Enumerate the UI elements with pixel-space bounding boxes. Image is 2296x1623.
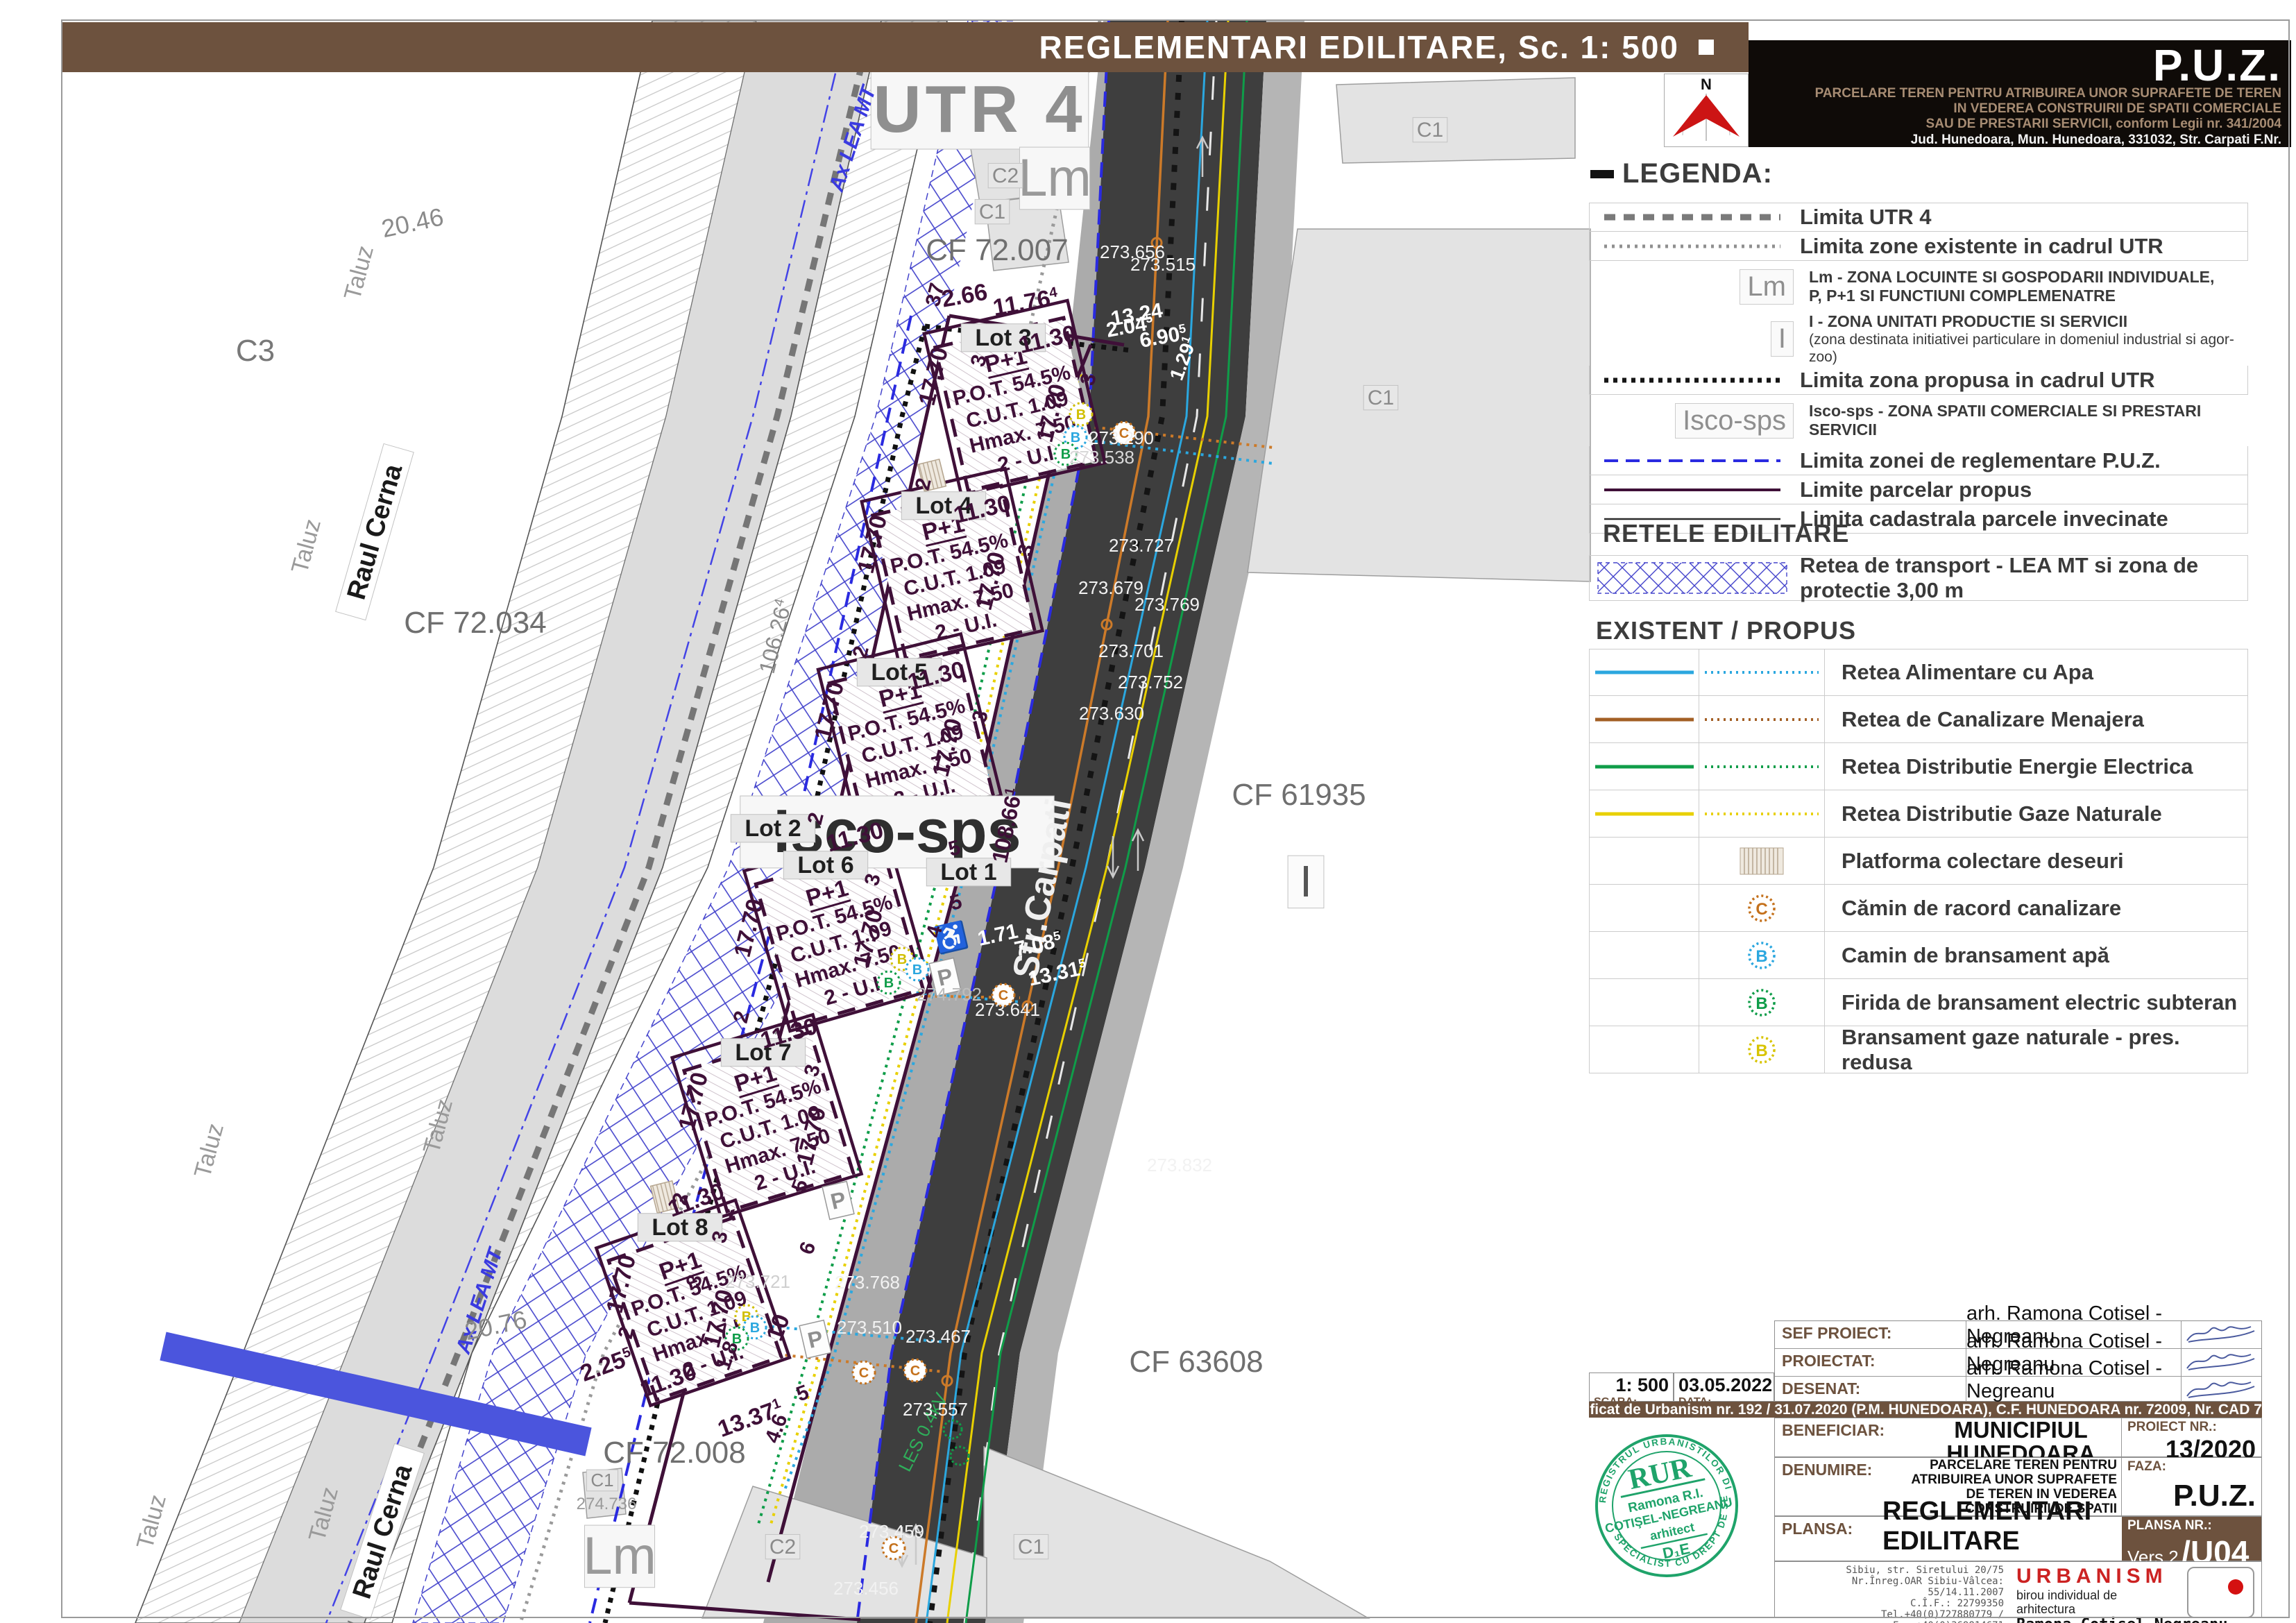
- map-label: C2: [988, 163, 1023, 187]
- svg-text:B: B: [1755, 947, 1767, 966]
- svg-text:B: B: [750, 1320, 760, 1336]
- legend-item: Limita zone existente in cadrul UTR: [1589, 232, 2248, 261]
- retele-heading: RETELE EDILITARE: [1603, 519, 1849, 548]
- svg-text:B: B: [912, 962, 922, 978]
- existent-propus-label: Cămin de racord canalizare: [1825, 896, 2121, 921]
- legend-heading-text: LEGENDA:: [1622, 158, 1773, 189]
- map-label: Lot 2: [731, 815, 815, 842]
- retele-rows: Retea de transport - LEA MT si zona de p…: [1589, 555, 2248, 601]
- existent-propus-label: Camin de bransament apă: [1825, 943, 2109, 968]
- map-label: 20.46: [379, 202, 446, 243]
- office-line-1: Sibiu, str. Siretului 20/75: [1775, 1565, 2004, 1576]
- label-text: C1: [590, 1470, 613, 1490]
- map-label: 273.467: [905, 1326, 971, 1347]
- existent-propus-label: Bransament gaze naturale - pres. redusa: [1825, 1025, 2247, 1075]
- label-text: C2: [992, 164, 1019, 187]
- denumire-label: DENUMIRE:: [1775, 1458, 1882, 1515]
- signature-icon: [2187, 1327, 2254, 1342]
- legend-rows: Limita UTR 4 Limita zone existente in ca…: [1589, 203, 2248, 534]
- sef-proiect-signature: [2181, 1321, 2261, 1348]
- legend-label: Limita zonei de reglementare P.U.Z.: [1794, 448, 2161, 473]
- existent-swatch: [1590, 838, 1699, 884]
- map-label: Lm: [583, 1525, 656, 1588]
- svg-text:B: B: [1755, 994, 1767, 1013]
- map-label: C1: [1413, 117, 1447, 142]
- map-label: Lm: [1018, 147, 1091, 210]
- map-label: 273.456: [833, 1578, 899, 1599]
- legend-zone-tag: I: [1771, 321, 1794, 357]
- map-label: 273.769: [1134, 594, 1200, 615]
- legend-zone-tag: Isco-sps: [1675, 403, 1794, 439]
- scara-cell: 1: 500 SCARA:: [1589, 1373, 1674, 1402]
- label-text: CF 72.007: [926, 233, 1068, 267]
- legend-heading-dash-icon: [1590, 170, 1614, 178]
- proiectat-signature: [2181, 1349, 2261, 1376]
- map-label: Raul Cerna: [336, 443, 414, 620]
- label-text: 274.792: [917, 984, 982, 1005]
- signature-icon: [2187, 1382, 2254, 1397]
- map-label: 273.768: [835, 1272, 900, 1293]
- utility-node: B: [906, 958, 928, 980]
- signatures-table: SEF PROIECT: arh. Ramona Cotisel - Negre…: [1774, 1320, 2262, 1402]
- label-text: C1: [1417, 119, 1443, 142]
- map-label: CF 63608: [1129, 1345, 1263, 1379]
- desenat-signature: [2181, 1377, 2261, 1403]
- propus-swatch: B: [1699, 979, 1825, 1026]
- title-bar-text: REGLEMENTARI EDILITARE, Sc. 1: 500: [1039, 28, 1679, 66]
- existent-propus-label: Retea Distributie Gaze Naturale: [1825, 801, 2162, 826]
- project-subtitle-1: PARCELARE TEREN PENTRU ATRIBUIREA UNOR S…: [1755, 86, 2281, 101]
- propus-swatch: [1699, 790, 1825, 837]
- svg-text:B: B: [897, 952, 907, 967]
- map-label: Taluz: [339, 243, 379, 303]
- existent-propus-item: Retea Distributie Gaze Naturale: [1589, 790, 2248, 838]
- existent-propus-item: BBransament gaze naturale - pres. redusa: [1589, 1026, 2248, 1073]
- rur-stamp: REGISTRUL URBANISTILOR DIN ROMANIA SPECI…: [1592, 1428, 1742, 1588]
- existent-propus-label: Retea Distributie Energie Electrica: [1825, 754, 2193, 779]
- legend-item: Limite parcelar propus: [1589, 475, 2248, 504]
- legend-item: Limita zonei de reglementare P.U.Z.: [1589, 446, 2248, 475]
- faza-label: FAZA:: [2127, 1459, 2256, 1475]
- map-label: Lot 6: [783, 851, 867, 879]
- existent-swatch: [1590, 1026, 1699, 1073]
- data-cell: 03.05.2022 DATA:: [1674, 1373, 1774, 1402]
- proiectat-label: PROIECTAT:: [1775, 1349, 1966, 1376]
- label-text: 273.727: [1109, 535, 1174, 556]
- utility-node: C: [904, 1359, 926, 1382]
- label-text: Taluz: [287, 516, 326, 577]
- map-label: Taluz: [189, 1121, 229, 1181]
- label-text: CF 63608: [1129, 1345, 1263, 1379]
- svg-text:B: B: [884, 976, 894, 991]
- map-label: 273.679: [1078, 577, 1143, 598]
- map-label: CF 72.007: [926, 233, 1068, 267]
- existent-propus-item: BFirida de bransament electric subteran: [1589, 979, 2248, 1026]
- svg-text:B: B: [1755, 1042, 1767, 1060]
- map-label: C2: [765, 1534, 800, 1558]
- label-text: Lot 1: [940, 859, 996, 885]
- desenat-value: arh. Ramona Cotisel - Negreanu: [1966, 1377, 2181, 1403]
- legend-heading: LEGENDA:: [1590, 158, 1773, 189]
- label-text: CF 61935: [1232, 778, 1366, 812]
- legend-swatch: [1590, 366, 1794, 394]
- map-label: 273.459: [859, 1521, 924, 1542]
- legend-swatch: [1590, 203, 1794, 231]
- legend-label: Limita zone existente in cadrul UTR: [1794, 234, 2163, 259]
- propus-swatch: [1699, 743, 1825, 790]
- legend-label: Limite parcelar propus: [1794, 477, 2032, 502]
- existent-propus-item: Retea Alimentare cu Apa: [1589, 649, 2248, 696]
- legend-item: Limita UTR 4: [1589, 203, 2248, 232]
- desenat-label: DESENAT:: [1775, 1377, 1966, 1403]
- existent-swatch: [1590, 790, 1699, 837]
- map-label: 273.752: [1118, 672, 1183, 692]
- proiect-nr-label: PROIECT NR.:: [2127, 1420, 2256, 1435]
- map-label: 274.736: [577, 1495, 637, 1513]
- map-label: 273.290: [1089, 427, 1154, 448]
- existent-swatch: [1590, 885, 1699, 931]
- north-arrow: N: [1664, 74, 1749, 147]
- denumire-line-1: PARCELARE TEREN PENTRU ATRIBUIREA UNOR S…: [1882, 1458, 2117, 1487]
- label-text: C1: [1368, 386, 1394, 409]
- map-label: C1: [1014, 1534, 1048, 1558]
- lea-swatch: [1590, 559, 1794, 597]
- label-text: Lot 2: [745, 815, 801, 842]
- map-label: 273.641: [975, 999, 1040, 1020]
- beneficiar-row: BENEFICIAR: MUNICIPIUL HUNEDOARA Jud. Hu…: [1774, 1418, 2262, 1457]
- faza-value: P.U.Z.: [2127, 1479, 2256, 1513]
- legend-item: Limita zona propusa in cadrul UTR: [1589, 366, 2248, 395]
- map-label: C1: [586, 1470, 618, 1491]
- map-label: 273.832: [1147, 1155, 1212, 1175]
- title-bar-square: [1699, 40, 1714, 55]
- svg-text:C: C: [1755, 900, 1767, 919]
- map-label: CF 61935: [1232, 778, 1366, 812]
- utility-node: B: [878, 971, 900, 994]
- svg-text:B: B: [1076, 407, 1086, 423]
- project-subtitle-2: IN VEDEREA CONSTRUIRII DE SPATII COMERCI…: [1755, 101, 2281, 117]
- map-label: 273.538: [1069, 447, 1134, 468]
- label-text: C1: [979, 201, 1005, 223]
- existent-swatch: [1590, 649, 1699, 695]
- label-text: 273.538: [1069, 447, 1134, 468]
- label-text: Lm: [583, 1527, 656, 1586]
- map-label: C1: [1363, 385, 1398, 409]
- label-text: 273.768: [835, 1272, 900, 1293]
- map-label: UTR 4: [871, 71, 1089, 149]
- title-bar: REGLEMENTARI EDILITARE, Sc. 1: 500: [62, 22, 1749, 72]
- legend-zone-desc: Lm - ZONA LOCUINTE SI GOSPODARII INDIVID…: [1803, 268, 2214, 305]
- map-label: 273.510: [837, 1317, 902, 1338]
- map-label: 274.792: [917, 984, 982, 1005]
- label-text: Lm: [1018, 148, 1091, 207]
- plansa-value: REGLEMENTARI EDILITARE: [1882, 1517, 2122, 1561]
- legend-label: Limita cadastrala parcele invecinate: [1794, 507, 2168, 532]
- existent-propus-item: BCamin de bransament apă: [1589, 932, 2248, 979]
- existent-propus-label: Platforma colectare deseuri: [1825, 849, 2124, 874]
- existent-propus-label: Firida de bransament electric subteran: [1825, 990, 2237, 1015]
- map-label: C3: [236, 334, 275, 368]
- map-label: 273.557: [903, 1399, 968, 1420]
- map-label: Taluz: [287, 516, 326, 577]
- existent-propus-item: Retea Distributie Energie Electrica: [1589, 743, 2248, 790]
- map-label: 273.721: [725, 1271, 790, 1292]
- propus-swatch: [1699, 649, 1825, 695]
- map-label: 273.515: [1130, 254, 1196, 275]
- legend-swatch: [1590, 476, 1794, 504]
- propus-swatch: [1699, 838, 1825, 884]
- map-label: I: [1288, 856, 1324, 908]
- plan-sheet: P+1P.O.T. 54.5%C.U.T. 1.09Hmax. 7.502 - …: [0, 0, 2296, 1623]
- legend-item: Lm Lm - ZONA LOCUINTE SI GOSPODARII INDI…: [1589, 261, 2248, 312]
- map-label: 273.701: [1098, 640, 1164, 661]
- svg-text:C: C: [859, 1366, 869, 1381]
- project-phase-title: P.U.Z.: [1755, 44, 2281, 86]
- legend-swatch: [1590, 232, 1794, 260]
- label-text: 273.459: [859, 1521, 924, 1542]
- beneficiar-label: BENEFICIAR:: [1775, 1418, 1921, 1456]
- utility-node: B: [1070, 403, 1092, 425]
- label-text: 273.515: [1130, 254, 1196, 275]
- map-label: C1: [975, 199, 1010, 223]
- existent-propus-heading: EXISTENT / PROPUS: [1596, 616, 1856, 645]
- propus-swatch: C: [1699, 885, 1825, 931]
- svg-text:B: B: [1071, 430, 1080, 445]
- label-text: Raul Cerna: [342, 461, 409, 603]
- label-text: Lot 6: [797, 852, 853, 878]
- existent-swatch: [1590, 743, 1699, 790]
- legend-swatch: [1590, 447, 1794, 475]
- propus-swatch: B: [1699, 932, 1825, 978]
- existent-propus-item: Retea de Canalizare Menajera: [1589, 696, 2248, 743]
- label-text: Taluz: [189, 1121, 229, 1181]
- label-text: UTR 4: [873, 72, 1086, 146]
- building-c1-east: [1248, 229, 1590, 581]
- label-text: 273.557: [903, 1399, 968, 1420]
- label-text: 273.832: [1147, 1155, 1212, 1175]
- label-text: 273.679: [1078, 577, 1143, 598]
- sef-proiect-label: SEF PROIECT:: [1775, 1321, 1966, 1348]
- existent-swatch: [1590, 696, 1699, 742]
- scara-value: 1: 500: [1594, 1375, 1669, 1396]
- legend-zone-desc: I - ZONA UNITATI PRODUCTIE SI SERVICII(z…: [1803, 312, 2248, 366]
- certificat-band: Certificat de Urbanism nr. 192 / 31.07.2…: [1589, 1402, 2262, 1418]
- logo-red-dot-icon: [2228, 1579, 2243, 1595]
- map-label: 273.630: [1079, 703, 1144, 724]
- label-text: 273.769: [1134, 594, 1200, 615]
- retele-label: Retea de transport - LEA MT si zona de p…: [1794, 553, 2247, 603]
- label-text: 273.701: [1098, 640, 1164, 661]
- firm-logo: [2187, 1567, 2254, 1618]
- label-text: Taluz: [339, 243, 379, 303]
- label-text: 274.736: [577, 1495, 637, 1513]
- existent-propus-label: Retea Alimentare cu Apa: [1825, 660, 2093, 685]
- legend-item: Isco-sps Isco-sps - ZONA SPATII COMERCIA…: [1589, 395, 2248, 446]
- label-text: 273.467: [905, 1326, 971, 1347]
- office-line-2: Nr.Înreg.OAR Sibiu-Vâlcea: 55/14.11.2007: [1775, 1576, 2004, 1598]
- label-text: 273.630: [1079, 703, 1144, 724]
- existent-propus-item: CCămin de racord canalizare: [1589, 885, 2248, 932]
- label-text: 273.510: [837, 1317, 902, 1338]
- utility-node: C: [853, 1361, 875, 1384]
- legend-zone-desc: Isco-sps - ZONA SPATII COMERCIALE SI PRE…: [1803, 402, 2248, 439]
- signature-icon: [2187, 1354, 2254, 1370]
- data-value: 03.05.2022: [1678, 1375, 1769, 1396]
- project-address: Jud. Hunedoara, Mun. Hunedoara, 331032, …: [1755, 132, 2281, 148]
- legend-label: Limita UTR 4: [1794, 205, 1931, 230]
- label-text: 273.290: [1089, 427, 1154, 448]
- legend-label: Limita zona propusa in cadrul UTR: [1794, 368, 2155, 393]
- project-subtitle-3: SAU DE PRESTARII SERVICII, conform Legii…: [1755, 117, 2281, 132]
- office-line-4: Tel.+40(0)727880779 / Fax.+40(0)36981467…: [1775, 1609, 2004, 1623]
- label-text: 273.456: [833, 1578, 899, 1599]
- propus-swatch: [1699, 696, 1825, 742]
- map-label: 273.727: [1109, 535, 1174, 556]
- office-line-3: C.Î.F.: 22799350: [1775, 1598, 2004, 1609]
- map-label: Taluz: [132, 1492, 171, 1552]
- label-text: CF 72.034: [404, 606, 546, 640]
- label-text: 273.721: [725, 1271, 790, 1292]
- plansa-label: PLANSA:: [1775, 1517, 1882, 1561]
- building-c1-topright: [1336, 78, 1575, 163]
- svg-text:C: C: [910, 1363, 920, 1379]
- project-header: P.U.Z. PARCELARE TEREN PENTRU ATRIBUIREA…: [1749, 40, 2291, 147]
- north-label: N: [1701, 76, 1712, 93]
- plansa-row: PLANSA: REGLEMENTARI EDILITARE PLANSA NR…: [1774, 1516, 2262, 1561]
- legend-zone-tag: Lm: [1740, 269, 1794, 305]
- label-text: 273.641: [975, 999, 1040, 1020]
- existent-propus-rows: Retea Alimentare cu ApaRetea de Canaliza…: [1589, 649, 2248, 1073]
- existent-propus-label: Retea de Canalizare Menajera: [1825, 707, 2144, 732]
- label-text: C1: [1018, 1536, 1044, 1558]
- label-text: I: [1300, 856, 1312, 906]
- legend-item: I I - ZONA UNITATI PRODUCTIE SI SERVICII…: [1589, 312, 2248, 366]
- existent-swatch: [1590, 932, 1699, 978]
- existent-swatch: [1590, 979, 1699, 1026]
- label-text: Taluz: [132, 1492, 171, 1552]
- office-contact: Sibiu, str. Siretului 20/75 Nr.Înreg.OAR…: [1775, 1562, 2009, 1617]
- plansa-nr-label: PLANSA NR.:: [2127, 1518, 2256, 1533]
- svg-text:C: C: [889, 1541, 899, 1556]
- label-text: C3: [236, 334, 275, 368]
- building-c1-bottomright: [984, 1447, 1368, 1618]
- propus-swatch: B: [1699, 1026, 1825, 1073]
- existent-propus-item: Platforma colectare deseuri: [1589, 838, 2248, 885]
- label-text: 20.46: [379, 202, 446, 243]
- map-label: CF 72.034: [404, 606, 546, 640]
- label-text: C2: [769, 1536, 796, 1558]
- label-text: 273.752: [1118, 672, 1183, 692]
- retele-item: Retea de transport - LEA MT si zona de p…: [1589, 555, 2248, 601]
